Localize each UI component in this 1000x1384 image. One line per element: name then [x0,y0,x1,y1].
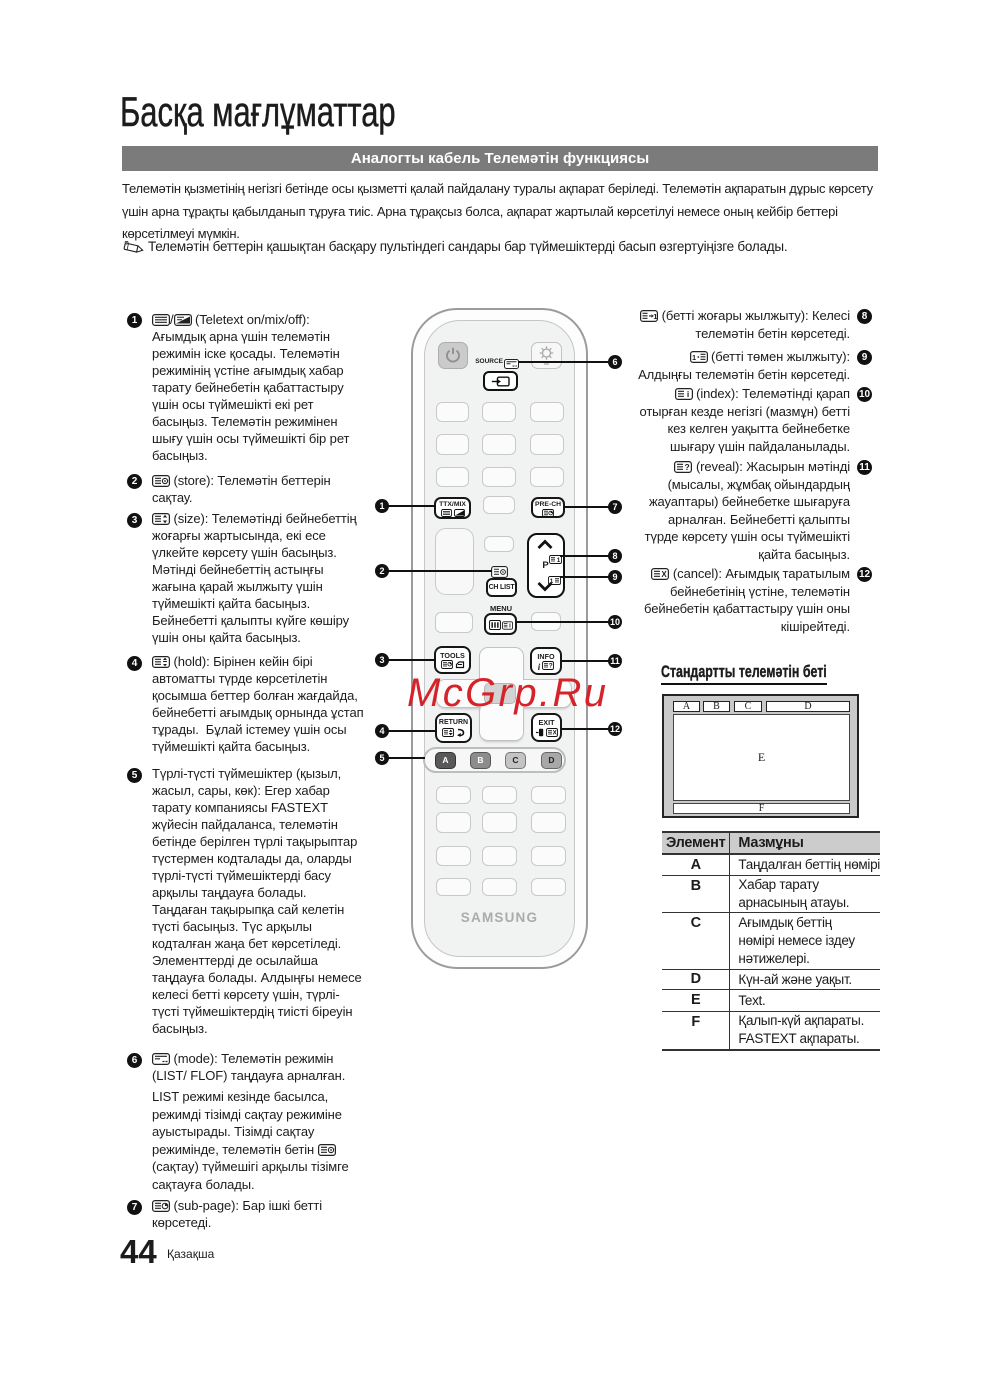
svg-text:1: 1 [653,312,657,321]
svg-text:i: i [686,389,688,399]
svg-text:?: ? [549,663,553,670]
svg-text:?: ? [685,462,690,472]
svg-text:1: 1 [691,353,695,362]
svg-text:X: X [662,570,668,579]
